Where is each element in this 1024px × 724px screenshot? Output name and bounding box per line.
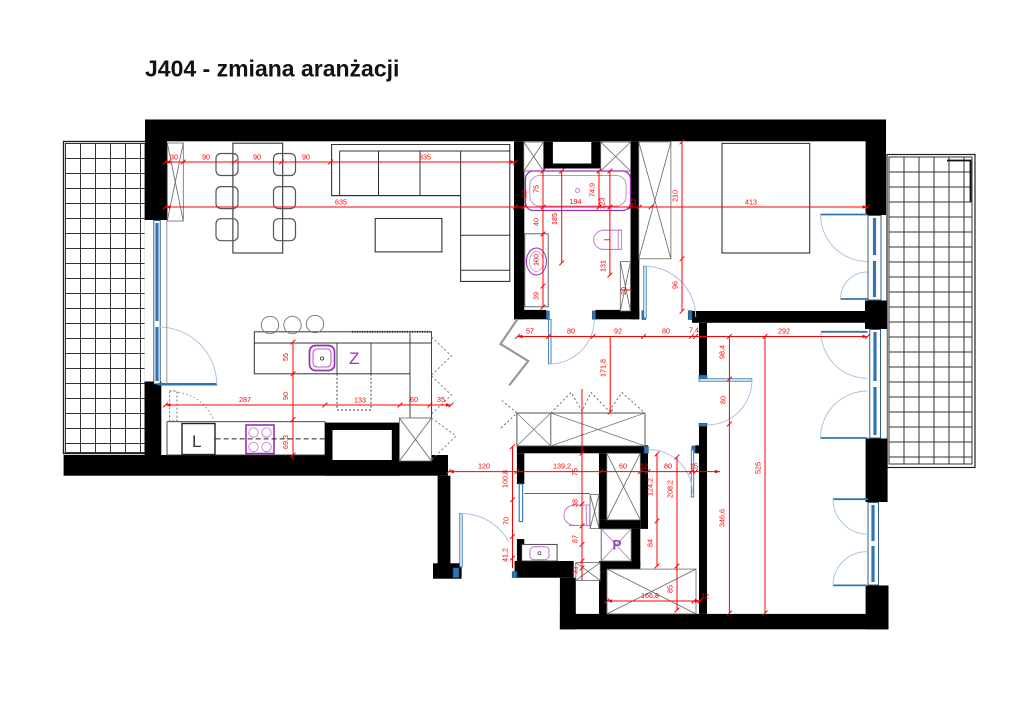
svg-text:35: 35 (437, 395, 445, 404)
svg-text:85: 85 (666, 585, 675, 593)
svg-text:92: 92 (614, 327, 622, 336)
svg-text:166,8: 166,8 (641, 591, 659, 600)
svg-text:12: 12 (629, 198, 638, 206)
svg-text:90: 90 (281, 392, 290, 400)
svg-text:15: 15 (690, 462, 698, 471)
svg-text:139,2: 139,2 (553, 462, 571, 471)
svg-text:90: 90 (253, 153, 261, 162)
svg-text:120: 120 (478, 462, 490, 471)
svg-text:287: 287 (239, 395, 251, 404)
svg-text:131: 131 (599, 260, 608, 272)
svg-text:80: 80 (567, 327, 575, 336)
svg-text:185: 185 (550, 213, 559, 225)
svg-text:80: 80 (662, 327, 670, 336)
svg-text:55: 55 (281, 353, 290, 361)
svg-text:171,8: 171,8 (599, 359, 608, 377)
svg-text:80: 80 (664, 462, 672, 471)
svg-text:194: 194 (570, 197, 582, 206)
svg-text:635: 635 (335, 198, 347, 207)
svg-text:133: 133 (354, 396, 366, 405)
svg-text:413: 413 (745, 198, 757, 207)
svg-text:123: 123 (598, 198, 607, 210)
svg-text:40: 40 (532, 218, 541, 226)
svg-text:100: 100 (532, 254, 541, 266)
svg-text:38: 38 (571, 499, 580, 507)
svg-text:346,6: 346,6 (718, 509, 727, 527)
svg-text:75: 75 (532, 185, 541, 193)
svg-text:7,4: 7,4 (689, 326, 699, 335)
svg-text:124,2: 124,2 (646, 478, 655, 496)
svg-text:P: P (613, 538, 622, 553)
svg-text:60: 60 (619, 462, 627, 471)
svg-text:60: 60 (410, 395, 418, 404)
svg-text:90: 90 (302, 153, 310, 162)
svg-text:70: 70 (502, 517, 511, 525)
svg-text:31: 31 (571, 566, 580, 574)
svg-text:75: 75 (571, 468, 580, 476)
svg-text:12: 12 (640, 462, 648, 471)
svg-text:39: 39 (532, 292, 541, 300)
svg-text:90: 90 (202, 153, 210, 162)
svg-text:Z: Z (349, 349, 359, 368)
svg-text:12: 12 (701, 592, 709, 601)
svg-text:87: 87 (571, 535, 580, 543)
svg-text:69,3: 69,3 (281, 435, 290, 449)
svg-text:208,2: 208,2 (666, 480, 675, 498)
svg-text:57: 57 (526, 327, 534, 336)
svg-text:12: 12 (520, 190, 529, 198)
svg-text:100,8: 100,8 (501, 470, 510, 488)
svg-text:20: 20 (619, 287, 628, 295)
svg-text:41,2: 41,2 (501, 548, 510, 562)
svg-text:210: 210 (671, 190, 680, 202)
svg-text:30: 30 (170, 153, 178, 162)
svg-text:80: 80 (719, 396, 728, 404)
svg-text:98,4: 98,4 (718, 345, 727, 359)
svg-text:96: 96 (671, 281, 680, 289)
svg-text:L: L (192, 432, 201, 451)
svg-text:74,9: 74,9 (588, 183, 597, 197)
svg-text:525: 525 (754, 462, 763, 474)
svg-text:335: 335 (419, 153, 431, 162)
svg-text:J404 - zmiana aranżacji: J404 - zmiana aranżacji (145, 56, 399, 82)
svg-text:84: 84 (646, 539, 655, 547)
svg-text:292: 292 (778, 327, 790, 336)
